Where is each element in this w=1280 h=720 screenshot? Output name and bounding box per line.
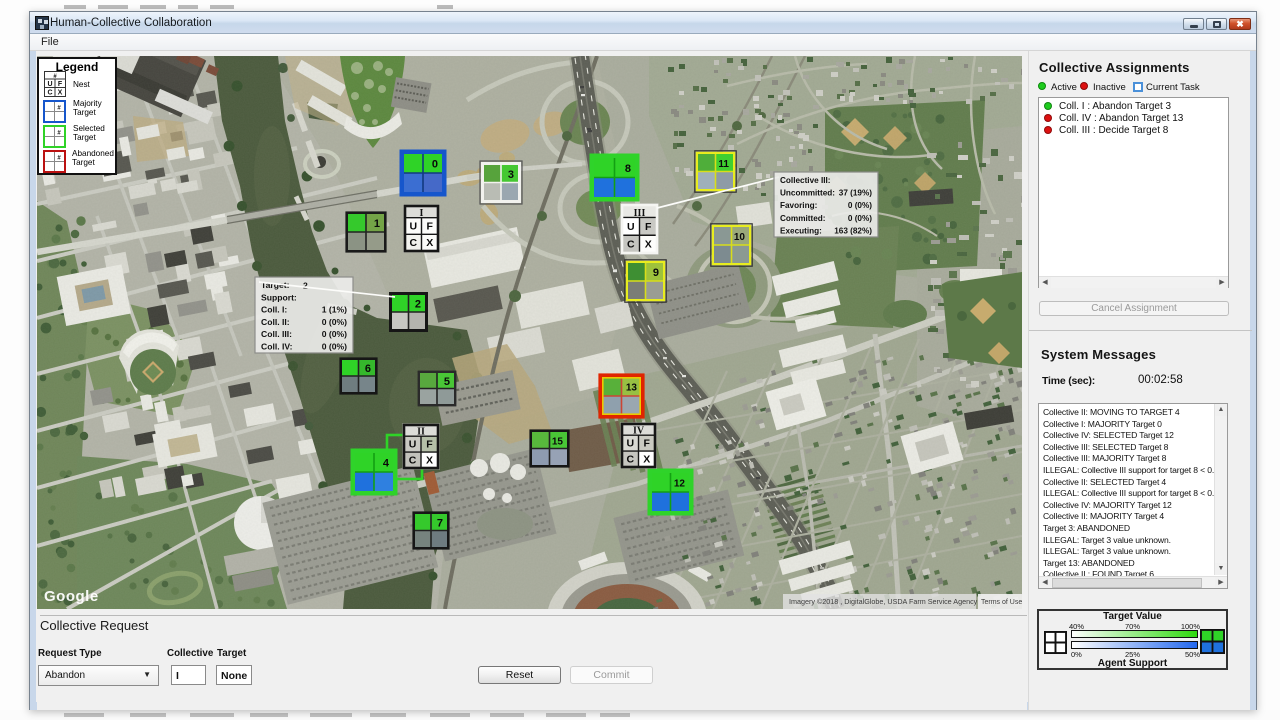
- svg-text:Committed:: Committed:: [780, 214, 825, 223]
- svg-text:C: C: [409, 237, 417, 249]
- svg-text:Coll. I:: Coll. I:: [261, 305, 287, 315]
- svg-text:0 (0%): 0 (0%): [322, 317, 347, 327]
- svg-text:0 (0%): 0 (0%): [848, 201, 872, 210]
- svg-text:Executing:: Executing:: [780, 226, 822, 235]
- svg-text:X: X: [426, 237, 433, 249]
- svg-text:0 (0%): 0 (0%): [322, 329, 347, 339]
- svg-text:10: 10: [734, 232, 746, 243]
- svg-text:IV: IV: [633, 426, 645, 437]
- svg-text:U: U: [409, 439, 417, 451]
- svg-text:Coll. III:: Coll. III:: [261, 329, 292, 339]
- svg-text:2: 2: [303, 281, 308, 291]
- svg-text:C: C: [626, 454, 634, 466]
- svg-text:X: X: [58, 90, 63, 97]
- svg-text:Support:: Support:: [261, 292, 297, 302]
- svg-text:X: X: [426, 455, 433, 467]
- svg-text:11: 11: [718, 159, 729, 170]
- svg-text:37 (19%): 37 (19%): [839, 189, 872, 198]
- svg-text:U: U: [409, 221, 417, 233]
- svg-text:4: 4: [383, 458, 390, 470]
- svg-text:7: 7: [437, 517, 443, 529]
- svg-text:#: #: [57, 106, 61, 112]
- svg-text:0 (0%): 0 (0%): [848, 214, 872, 223]
- svg-text:Uncommitted:: Uncommitted:: [780, 189, 835, 198]
- svg-text:F: F: [58, 81, 63, 88]
- svg-text:6: 6: [365, 363, 371, 375]
- svg-text:1 (1%): 1 (1%): [322, 305, 347, 315]
- svg-text:F: F: [426, 439, 433, 451]
- svg-text:#: #: [57, 131, 61, 137]
- svg-text:8: 8: [625, 163, 631, 175]
- svg-text:Google: Google: [44, 588, 99, 605]
- svg-text:#: #: [57, 156, 61, 162]
- svg-text:3: 3: [508, 169, 514, 181]
- svg-text:F: F: [427, 221, 434, 233]
- svg-text:U: U: [47, 81, 52, 88]
- svg-text:C: C: [47, 90, 52, 97]
- svg-text:5: 5: [444, 376, 450, 388]
- svg-text:13: 13: [626, 383, 638, 394]
- svg-text:Favoring:: Favoring:: [780, 201, 817, 210]
- svg-text:F: F: [644, 438, 651, 450]
- svg-text:U: U: [627, 221, 635, 233]
- svg-text:X: X: [643, 454, 650, 466]
- svg-text:0: 0: [432, 159, 438, 171]
- svg-text:F: F: [645, 221, 652, 233]
- svg-text:2: 2: [415, 299, 421, 311]
- svg-text:15: 15: [552, 436, 564, 447]
- svg-text:C: C: [627, 239, 635, 251]
- svg-text:Coll. IV:: Coll. IV:: [261, 342, 293, 352]
- svg-text:Terms of Use: Terms of Use: [981, 599, 1022, 606]
- svg-text:I: I: [420, 208, 424, 219]
- svg-text:0 (0%): 0 (0%): [322, 342, 347, 352]
- svg-text:U: U: [626, 438, 634, 450]
- svg-text:C: C: [409, 455, 417, 467]
- svg-text:163 (82%): 163 (82%): [834, 226, 872, 235]
- svg-text:9: 9: [653, 267, 659, 279]
- svg-text:Imagery ©2018 , DigitalGlobe,: Imagery ©2018 , DigitalGlobe, USDA Farm …: [789, 597, 978, 606]
- svg-text:Collective III:: Collective III:: [780, 176, 831, 185]
- svg-text:III: III: [634, 208, 646, 219]
- svg-text:Coll. II:: Coll. II:: [261, 317, 290, 327]
- svg-text:II: II: [417, 427, 425, 438]
- svg-text:X: X: [645, 239, 652, 251]
- svg-text:12: 12: [674, 479, 686, 490]
- svg-text:1: 1: [374, 218, 380, 230]
